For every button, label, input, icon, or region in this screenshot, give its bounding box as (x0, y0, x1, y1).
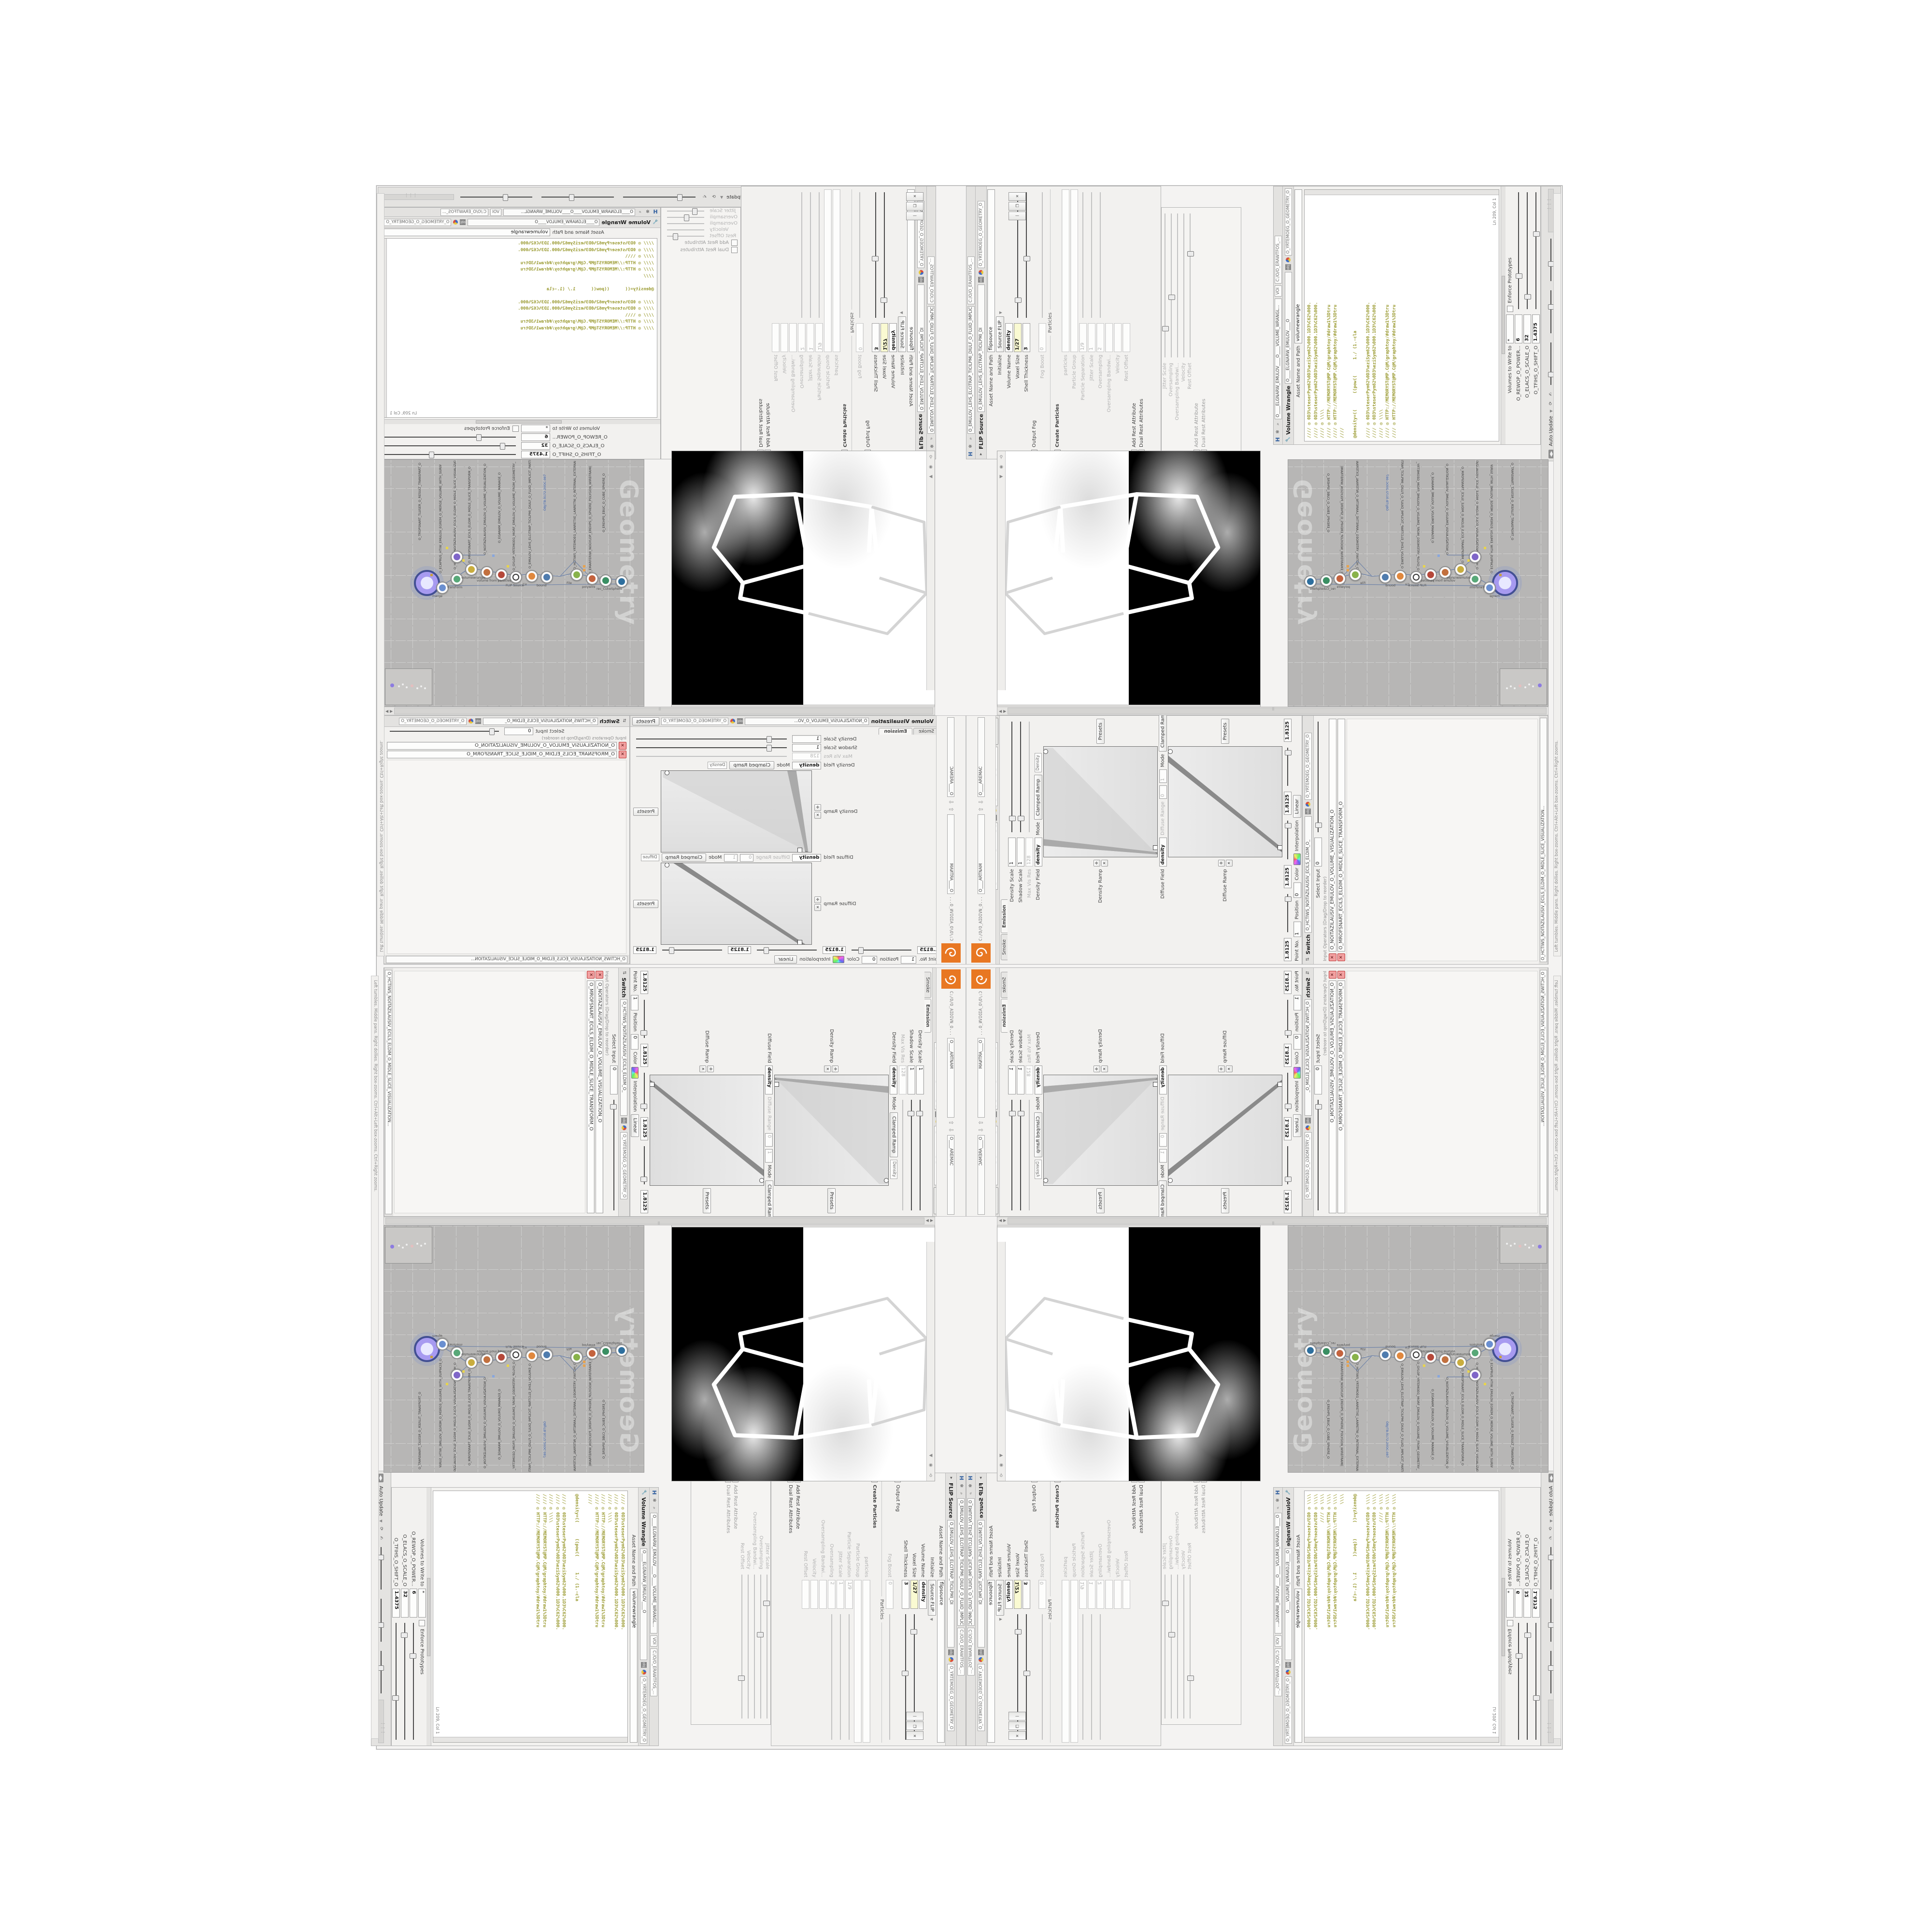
ramp-add-icon[interactable]: ✛ (708, 1065, 714, 1073)
target-icon[interactable]: ◉ (929, 465, 933, 469)
particle-separation-field[interactable]: 1/9 (1079, 323, 1087, 352)
ramp-value-field[interactable]: 1.8125 (1284, 719, 1292, 742)
network-path[interactable]: O_EMULOV_LEHS_ELCITRAP_TICILPMI_DIULF_O_… (967, 306, 975, 434)
slider[interactable] (667, 236, 704, 237)
recook-icon[interactable]: ⟳ (711, 194, 717, 200)
slider[interactable] (1183, 1575, 1184, 1719)
power-slider[interactable] (1518, 1623, 1519, 1740)
pane-drag-handle[interactable]: ◀▶ (1548, 1474, 1554, 1482)
maximize-icon[interactable]: ❐ (1009, 202, 1026, 211)
ramp-del-icon[interactable]: ✕ (1226, 1065, 1233, 1073)
search-icon[interactable]: ⌕ (1275, 1505, 1281, 1511)
scale-field[interactable]: 32 (401, 1589, 409, 1618)
obj-chip-icon[interactable]: obj (1285, 1662, 1291, 1668)
slider[interactable] (1165, 213, 1165, 357)
node-switch-a[interactable] (1469, 1369, 1481, 1381)
scene-viewport[interactable]: ⚲ ◉ ◀ ◍ ✑ ◀ ▏ ∩ ∩ ∩ ▦ ❋ ✽ ✥ ↻ (997, 1212, 1261, 1481)
shift-field[interactable]: 1.4375 (392, 1589, 400, 1618)
mantra-tab[interactable]: O____ARTNAM (978, 814, 985, 894)
particle-group-field[interactable] (824, 189, 832, 352)
search-icon[interactable]: ⌕ (928, 436, 934, 441)
asset-name-field[interactable]: flipsource (987, 189, 995, 352)
tab-smoke[interactable]: Smoke (913, 728, 939, 735)
particle-group-field[interactable] (1070, 1580, 1078, 1743)
network-path[interactable]: O____ELGNARW_EMULOV____O____VOLUME_WRANG… (1275, 298, 1282, 419)
node-selected[interactable] (414, 1336, 440, 1362)
presets-button[interactable]: Presets (703, 1188, 711, 1213)
density-field-field[interactable]: density (792, 762, 821, 769)
vex-code-editor[interactable]: //// ◎ 0D3%steserPym62%0D3%eziSym62%000.… (381, 238, 657, 418)
ramp-value-slider[interactable] (852, 950, 911, 951)
oversampling-field[interactable]: 2 (1096, 1580, 1104, 1609)
code-hscrollbar[interactable] (378, 419, 660, 424)
select-input-slider[interactable] (390, 731, 499, 732)
arrow-up-icon[interactable]: ⇧ (948, 807, 954, 812)
recook-icon[interactable]: ⟳ (378, 1526, 384, 1532)
ramp-add-icon[interactable]: ✛ (1218, 860, 1225, 867)
node-polywire[interactable] (1334, 1347, 1346, 1360)
position-field[interactable]: 0 (1293, 882, 1301, 898)
oversampling-bandwidth-field[interactable] (1105, 1580, 1113, 1609)
node-path-tab[interactable]: O____ELGNARW_EMULOV____O (640, 1548, 648, 1660)
tab-emission[interactable]: Emission (924, 999, 931, 1033)
mantra-tab[interactable]: O____ARTNAM (978, 1038, 985, 1118)
volumes-field[interactable]: * (521, 425, 550, 432)
ramp-handle[interactable] (1278, 845, 1282, 850)
particle-separation-slider[interactable] (1082, 192, 1083, 318)
scroll-left-icon[interactable]: ◀ (930, 1219, 933, 1223)
network-path[interactable]: O_EMULOV_LEHS_ELCITRAP_TICILPMI_DIULF_O_… (958, 1498, 965, 1626)
ramp-handle[interactable] (1278, 1082, 1282, 1087)
volume-name-field[interactable]: density (919, 1580, 927, 1609)
tab-emission[interactable]: Emission (1001, 999, 1008, 1033)
ramp-value-slider[interactable] (644, 1000, 645, 1038)
oversampling-field[interactable]: 2 (798, 323, 806, 352)
obj-chip-icon[interactable]: obj (1305, 809, 1311, 814)
position-field[interactable]: 0 (631, 1034, 639, 1050)
fog-boost-field[interactable]: 0 (886, 1580, 894, 1609)
fog-boost-field[interactable]: 0 (856, 323, 864, 352)
remove-input-icon[interactable]: ✕ (587, 971, 595, 979)
node-label-link[interactable]: OBJ/TB.9172.2VOC.087 (543, 1421, 547, 1458)
power-field[interactable]: 6 (410, 1589, 417, 1618)
gear-icon[interactable]: ✻ (928, 443, 934, 449)
select-input-slider[interactable] (613, 1100, 614, 1210)
jitter-scale-field[interactable]: 1 (1088, 323, 1095, 352)
velocity-field[interactable] (1114, 323, 1122, 352)
node-flip-source[interactable] (510, 1349, 522, 1361)
color-swatch[interactable] (833, 956, 844, 963)
interrupt-icon[interactable]: ✍ (702, 194, 708, 200)
ramp-value-field[interactable]: 1.8125 (640, 1044, 648, 1067)
ramp-del-icon[interactable]: ✕ (1226, 860, 1233, 867)
ramp-handle[interactable] (797, 848, 802, 852)
node-switch-a[interactable] (1469, 551, 1481, 563)
remove-input-icon[interactable]: ✕ (1329, 953, 1336, 961)
max-vis-res-slider[interactable] (1029, 1100, 1030, 1210)
network-editor[interactable]: Geometry O_TROPSNART_TLUSER_O_RESULT_TRA… (384, 1225, 644, 1473)
shift-field[interactable]: 1.4375 (521, 451, 550, 458)
auto-update-dropdown[interactable]: Auto Update (1548, 1486, 1554, 1516)
obj-chip-icon[interactable]: obj (1285, 264, 1291, 270)
scroll-left-icon[interactable]: ◀ (999, 709, 1002, 713)
slider[interactable] (667, 217, 704, 218)
diffuse-range1[interactable]: 1 (724, 854, 738, 862)
jitter-scale-slider[interactable] (1091, 192, 1092, 318)
select-input-field[interactable]: 0 (1314, 1065, 1322, 1094)
shadow-scale-slider[interactable] (1020, 722, 1021, 832)
ramp-value-field[interactable]: 1.8125 (640, 1190, 648, 1213)
jitter-scale-slider[interactable] (840, 1614, 841, 1740)
ramp-del-icon[interactable]: ✕ (1101, 860, 1108, 867)
mantra-tab[interactable]: O____ARTNAM (948, 814, 955, 894)
gear-icon[interactable]: ✻ (645, 209, 651, 215)
mode-dropdown[interactable]: Clamped Ramp (662, 853, 707, 862)
rest-offset-field[interactable] (802, 1580, 810, 1609)
scale-field[interactable]: 32 (1523, 314, 1531, 343)
particle-group-field[interactable] (854, 1580, 862, 1743)
power-field[interactable]: 6 (1515, 1589, 1522, 1618)
auto-update-dropdown[interactable]: Auto Update (379, 1486, 384, 1516)
playbar-slider[interactable] (623, 197, 696, 198)
display-flag[interactable] (1437, 1375, 1440, 1378)
display-flag[interactable] (462, 559, 465, 562)
arrow-down-icon[interactable]: ⇩ (978, 1127, 984, 1132)
max-vis-res-slider[interactable] (1029, 722, 1030, 832)
collapse-icon[interactable]: ◀ (1000, 474, 1003, 479)
code-vscrollbar[interactable] (433, 1737, 627, 1742)
geometry-net-path[interactable]: O_YRTEMOEG_O_GEOMETRY_O (640, 1676, 648, 1744)
input-item[interactable]: ✕ O_NOITAZILAUSIV_EMULOV_O_VOLUME_VISUAL… (384, 741, 629, 750)
ramp-del-icon[interactable]: ✕ (700, 1065, 707, 1073)
search-icon[interactable]: ⌕ (968, 1491, 974, 1496)
diffuse-range1[interactable]: 1 (1159, 769, 1167, 783)
minimize-icon[interactable]: — (1009, 1712, 1026, 1720)
viewport-side-toolbar[interactable]: ⚲ ◉ ◀ (926, 1242, 935, 1481)
ramp-del-icon[interactable]: ✕ (814, 904, 822, 911)
scene-viewport[interactable]: ⚲ ◉ ◀ ◍ ✑ ◀ ▏ ∩ ∩ ∩ ▦ ❋ ✽ ✥ ↻ (997, 451, 1261, 720)
node-path-tab[interactable]: O_HCTIWS_NOITAZILAUSIV_ECILS_ELDIM_O_ (1305, 999, 1312, 1116)
density-scale-slider[interactable] (920, 1100, 921, 1210)
interpolation-dropdown[interactable]: Linear (631, 1114, 639, 1137)
ramp-handle[interactable] (650, 1082, 654, 1087)
density-scale-field[interactable]: 1 (1008, 838, 1016, 867)
display-flag[interactable] (446, 547, 448, 549)
obj-chip-icon[interactable]: obj (918, 277, 924, 283)
density-field-field[interactable]: density (1035, 1065, 1042, 1094)
tab-smoke[interactable]: Smoke (924, 972, 931, 998)
voxel-size-slider[interactable] (884, 192, 885, 318)
minimize-icon[interactable]: — (1009, 212, 1026, 220)
vex-code-editor[interactable]: //// ◎ 0D3%steserPym62%0D3%eziSym62%000.… (433, 1491, 628, 1743)
network-editor[interactable]: Geometry O_TROPSNART_TLUSER_O_RESULT_TRA… (1288, 459, 1548, 707)
diffuse-range1[interactable]: 1 (1159, 1149, 1167, 1163)
remove-input-icon[interactable]: ✕ (1337, 971, 1345, 979)
oversampling-field[interactable]: 2 (1096, 323, 1104, 352)
point-no-field[interactable]: 1 (1293, 995, 1301, 1010)
node-sphere[interactable] (599, 1345, 612, 1358)
node-cubesphere[interactable] (615, 1344, 628, 1357)
shift-slider[interactable] (1535, 192, 1536, 309)
node-wrangle[interactable] (465, 563, 478, 576)
houdini-logo-icon[interactable] (971, 969, 991, 989)
network-path[interactable]: O_EMULOV_LEHS_ELCITRAP_TICILPMI_DIULF_O_… (967, 1498, 975, 1626)
ramp-handle[interactable] (797, 940, 802, 945)
jitter-scale-slider[interactable] (810, 192, 811, 318)
max-vis-res-slider[interactable] (636, 756, 787, 757)
enforce-prototypes-checkbox[interactable] (1507, 306, 1513, 312)
diffuse-range0[interactable]: 0 (740, 854, 753, 862)
node-bound[interactable] (540, 1349, 553, 1361)
node-switch-a[interactable] (451, 551, 463, 563)
diffuse-ramp-widget[interactable] (1168, 746, 1282, 857)
geometry-net-path[interactable]: O_YRTEMOEG_O_GEOMETRY_O (621, 1132, 628, 1199)
interrupt-icon[interactable]: ✍ (378, 1535, 384, 1541)
camera-tab[interactable]: O____AREMAC (948, 717, 955, 797)
slider[interactable] (1190, 1575, 1191, 1719)
node-label-link[interactable]: OBJ/TB.9172.2VOC.087 (1385, 474, 1389, 511)
shell-thickness-field[interactable]: 3 (1023, 1580, 1030, 1609)
diffuse-range0[interactable]: 0 (1159, 1133, 1167, 1147)
max-vis-res-field[interactable]: 128 (792, 753, 821, 760)
node-sphere[interactable] (599, 574, 612, 587)
point-no-field[interactable]: 1 (631, 995, 639, 1010)
shadow-scale-field[interactable]: 1 (1017, 838, 1024, 867)
voxel-size-field[interactable]: 1/27 (881, 323, 888, 352)
slider[interactable] (1171, 1575, 1172, 1719)
scale-slider[interactable] (1527, 1623, 1528, 1740)
frame-slider[interactable] (542, 197, 614, 198)
display-flag[interactable] (1347, 1361, 1349, 1363)
select-input-field[interactable]: 0 (610, 1065, 618, 1094)
particle-separation-slider[interactable] (849, 1614, 850, 1740)
mode-dropdown[interactable]: Clamped Ramp (1034, 775, 1042, 820)
fog-boost-field[interactable]: 0 (1038, 1580, 1046, 1609)
diffuse-ramp-widget[interactable] (650, 1075, 764, 1185)
obj-chip-icon[interactable]: obj (621, 1118, 627, 1123)
arrow-down-icon[interactable]: ⇩ (948, 1127, 954, 1132)
oversampling-slider[interactable] (1100, 1614, 1101, 1740)
mode-dropdown[interactable]: Clamped Ramp (1159, 1180, 1167, 1217)
obj-chip-icon[interactable]: obj (1305, 1118, 1311, 1123)
rest-offset-field[interactable] (1122, 1580, 1130, 1609)
ramp-handle[interactable] (1043, 749, 1048, 754)
node-path-tab[interactable]: O_EMULOV_LEHS_ELCITRAP_TICILPMI_DI (948, 1520, 955, 1648)
obj-chip-icon[interactable]: obj (737, 718, 743, 724)
ramp-handle[interactable] (1168, 749, 1173, 754)
display-flag[interactable] (1467, 559, 1470, 562)
scroll-right-icon[interactable]: ▶ (926, 1219, 929, 1223)
color-swatch[interactable] (1293, 1067, 1301, 1079)
slider[interactable] (761, 1575, 762, 1719)
node-path-tab[interactable]: O_HCTIWS_NOITAZILAUSIV_ECILS_ELDIM_O_ (621, 999, 628, 1116)
viewport-canvas[interactable]: ⚲ ◉ ◀ (997, 1227, 1260, 1481)
shell-thickness-slider[interactable] (1026, 1614, 1027, 1740)
scrollbar[interactable] (381, 194, 454, 200)
tab-smoke[interactable]: Smoke (1001, 972, 1008, 998)
source-flip-dropdown[interactable]: Source FLIP (996, 1580, 1004, 1616)
network-path[interactable]: O_HCTIWS_NOITAZILAUSIV_ECILS_ELDIM_O_MID… (1540, 970, 1547, 1214)
scene-viewport[interactable]: ⚲ ◉ ◀ ◍ ✑ ◀ ▏ ∩ ∩ ∩ ▦ ❋ ✽ ✥ ↻ (671, 451, 935, 720)
input-item[interactable]: ✕ O_MROFSNART_ECILS_ELDIM_O_MIDLE_SLICE_… (1337, 968, 1346, 1216)
network-overview-inset[interactable] (1500, 668, 1547, 705)
maximize-icon[interactable]: ❐ (906, 1721, 923, 1730)
shadow-scale-field[interactable]: 1 (908, 1065, 915, 1094)
pane-drag-handle[interactable]: ◀▶ (379, 1474, 384, 1482)
arrow-up-icon[interactable]: ⇧ (948, 1120, 954, 1125)
scale-slider[interactable] (1550, 1651, 1551, 1693)
diffuse-ramp-widget[interactable] (661, 863, 811, 945)
network-path[interactable]: O____ELGNARW_EMULOV____O____VOLUME_WRANG… (503, 209, 635, 216)
node-selected[interactable] (414, 570, 440, 596)
interpolation-dropdown[interactable]: Linear (1293, 1114, 1301, 1137)
code-vscrollbar[interactable] (1305, 1737, 1499, 1742)
rest-offset-field[interactable] (772, 323, 780, 352)
slider[interactable] (1177, 213, 1178, 357)
ramp-value-field[interactable]: 1.8125 (823, 946, 846, 954)
node-cubesphere[interactable] (615, 575, 628, 588)
max-vis-res-slider[interactable] (902, 1100, 903, 1210)
pin-icon[interactable]: ⚲ (929, 1472, 933, 1477)
node-flip-source[interactable] (510, 571, 522, 583)
shell-thickness-field[interactable]: 3 (1023, 323, 1030, 352)
diffuse-range0[interactable]: 0 (1159, 785, 1167, 799)
node-cir[interactable] (526, 570, 538, 582)
scale-field[interactable]: 32 (1523, 1589, 1531, 1618)
presets-button[interactable]: Presets (632, 717, 659, 725)
vex-code-editor[interactable]: //// ◎ 0D3%steserPym62%0D3%eziSym62%000.… (1304, 1491, 1499, 1743)
arrow-up-icon[interactable]: ⇧ (978, 807, 984, 812)
ramp-del-icon[interactable]: ✕ (824, 1065, 831, 1073)
power-slider[interactable] (1518, 192, 1519, 309)
shadow-scale-field[interactable]: 1 (1017, 1065, 1024, 1094)
fog-boost-field[interactable]: 0 (1038, 323, 1046, 352)
presets-button[interactable]: Presets (1221, 1188, 1229, 1213)
frame-slider[interactable] (1550, 1599, 1551, 1641)
ramp-value-field[interactable]: 1.8125 (728, 946, 751, 954)
diffuse-range0[interactable]: 0 (766, 1133, 773, 1147)
gear-icon[interactable]: ✻ (1275, 1497, 1281, 1503)
input-item[interactable]: ✕ O_MROFSNART_ECILS_ELDIM_O_MIDLE_SLICE_… (1337, 716, 1346, 964)
power-field[interactable]: 6 (1515, 314, 1522, 343)
node-cir[interactable] (526, 1350, 538, 1362)
node-bound[interactable] (540, 571, 553, 583)
ramp-handle[interactable] (774, 1082, 779, 1087)
density-scale-slider[interactable] (636, 739, 787, 739)
houdini-logo-icon[interactable] (941, 943, 961, 963)
enforce-prototypes-checkbox[interactable] (419, 1620, 426, 1626)
node-switch-a[interactable] (451, 1369, 463, 1381)
density-scale-field[interactable]: 1 (1008, 1065, 1016, 1094)
mode-dropdown[interactable]: Clamped Ramp (1034, 1112, 1042, 1157)
ramp-value-slider[interactable] (1287, 748, 1288, 786)
slider[interactable] (1165, 1575, 1165, 1719)
node-path-tab[interactable]: O_EMULOV_LEHS_ELCITRAP_TICILPMI_DI (978, 1520, 985, 1648)
position-field[interactable]: 0 (1293, 1034, 1301, 1050)
slider[interactable] (742, 1575, 743, 1719)
ramp-add-icon[interactable]: ✛ (814, 804, 822, 811)
volumes-field[interactable]: * (418, 1589, 426, 1618)
presets-button[interactable]: Presets (1096, 1188, 1105, 1213)
ramp-value-slider[interactable] (1287, 1146, 1288, 1184)
node-selected[interactable] (1492, 570, 1518, 596)
scale-slider[interactable] (1550, 239, 1551, 281)
code-hscrollbar[interactable] (426, 1488, 431, 1746)
houdini-logo-icon[interactable] (941, 969, 961, 989)
density-field-field[interactable]: density (890, 1065, 898, 1094)
pin-icon[interactable]: ⚲ (1000, 455, 1003, 460)
density-chip[interactable]: Density (708, 762, 727, 769)
scene-viewport[interactable]: ⚲ ◉ ◀ ◍ ✑ ◀ ▏ ∩ ∩ ∩ ▦ ❋ ✽ ✥ ↻ (671, 1212, 935, 1481)
select-input-slider[interactable] (1318, 722, 1319, 832)
diffuse-ramp-widget[interactable] (1168, 1075, 1282, 1185)
fog-boost-slider[interactable] (1042, 1614, 1043, 1740)
ramp-handle[interactable] (759, 1178, 764, 1183)
diffuse-field-field[interactable]: density (766, 1065, 773, 1094)
obj-chip-icon[interactable]: obj (641, 1662, 647, 1668)
playbar-slider[interactable] (1550, 342, 1551, 385)
mode-dropdown[interactable]: Clamped Ramp (890, 1112, 898, 1157)
arrow-down-icon[interactable]: ⇩ (978, 799, 984, 804)
ramp-handle[interactable] (1153, 1082, 1158, 1087)
vex-code-editor[interactable]: //// ◎ 0D3%steserPym62%0D3%eziSym62%000.… (1304, 189, 1499, 441)
playbar-slider[interactable] (381, 1547, 382, 1590)
horizontal-scrollbar[interactable]: ◀ ▶ (384, 707, 935, 715)
point-no-field[interactable]: 1 (901, 956, 916, 964)
presets-button[interactable]: Presets (1096, 719, 1105, 744)
asset-name-field[interactable]: flipsource (937, 1580, 945, 1743)
ramp-handle[interactable] (1153, 845, 1158, 850)
input-item[interactable]: ✕ O_NOITAZILAUSIV_EMULOV_O_VOLUME_VISUAL… (595, 968, 604, 1216)
node-wrangle[interactable] (1454, 1356, 1467, 1369)
auto-update-dropdown[interactable]: Auto Update (1548, 416, 1554, 446)
density-ramp-widget[interactable] (661, 770, 811, 852)
pin-icon[interactable]: ⚲ (1000, 1472, 1003, 1477)
geometry-net-path[interactable]: O_YRTEMOEG_O_GEOMETRY_O (399, 718, 466, 725)
volume-name-field[interactable]: density (889, 323, 897, 352)
scroll-left-icon[interactable]: ◀ (385, 709, 388, 713)
close-icon[interactable]: ✕ (1009, 192, 1026, 201)
node-path-tab[interactable]: O____ELGNARW_EMULOV____O (1285, 272, 1292, 384)
density-scale-slider[interactable] (1011, 1100, 1012, 1210)
display-flag[interactable] (583, 569, 585, 571)
density-chip[interactable]: Density (890, 1160, 897, 1179)
mantra-tab[interactable]: O____ARTNAM (948, 1038, 955, 1118)
particle-separation-field[interactable]: 1/9 (1079, 1580, 1087, 1609)
ramp-handle[interactable] (884, 1178, 889, 1183)
network-overview-inset[interactable] (1500, 1227, 1547, 1264)
volume-name-field[interactable]: density (1005, 323, 1013, 352)
display-flag[interactable] (492, 554, 495, 557)
slider[interactable] (1171, 213, 1172, 357)
particles-field[interactable] (1062, 189, 1069, 352)
geometry-net-path[interactable]: O_YRTEMOEG_O_GEOMETRY_O (1305, 733, 1312, 800)
density-ramp-widget[interactable] (1043, 746, 1158, 857)
code-hscrollbar[interactable] (1501, 1488, 1506, 1746)
viewport-side-toolbar[interactable]: ⚲ ◉ ◀ (926, 451, 935, 690)
display-flag[interactable] (1347, 569, 1349, 571)
asset-name-field[interactable]: volumewrangle (1294, 189, 1302, 343)
ramp-value-slider[interactable] (757, 950, 817, 951)
select-input-slider[interactable] (1318, 1100, 1319, 1210)
vex-code[interactable]: //// ◎ 0D3%steserPym62%0D3%eziSym62%000.… (1305, 1491, 1499, 1737)
density-ramp-widget[interactable] (1043, 1075, 1158, 1185)
houdini-logo-icon[interactable] (971, 943, 991, 963)
scale-slider[interactable] (404, 1623, 405, 1740)
velocity-field[interactable] (781, 323, 788, 352)
scroll-right-icon[interactable]: ▶ (390, 709, 393, 713)
target-icon[interactable]: ◉ (929, 1463, 933, 1467)
